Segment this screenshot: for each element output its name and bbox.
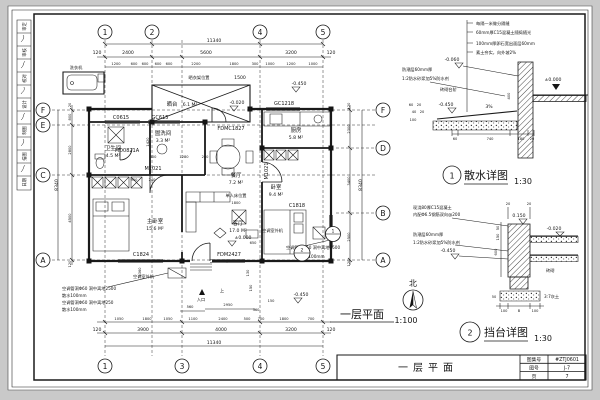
dim-label: 100 (410, 118, 418, 122)
svg-text:A: A (380, 256, 386, 265)
dim-label: 1000 (265, 62, 275, 66)
detail-scale: 1:30 (534, 334, 552, 343)
grid-bubble-left: F (36, 103, 50, 117)
note-ac-unit: 空调室外机 (262, 227, 284, 234)
note-apron: 散水100mm (62, 292, 87, 299)
room-area: 6.1 M² (183, 102, 198, 108)
room-name: 晒台 (167, 100, 178, 108)
grid-bubble-top: 5 (316, 25, 330, 39)
detail-note: 内配Φ6.5钢筋双向@200 (413, 211, 461, 218)
dim-label: 1280 (179, 155, 189, 159)
level-value: -0.450 (294, 292, 309, 298)
dim-label: 120 (327, 327, 336, 333)
dim-label: 2950 (223, 303, 233, 307)
dim-label: 120 (347, 259, 351, 267)
gravel-hatch (433, 121, 517, 130)
dim-label: 600 (155, 62, 163, 66)
curb-wall-hatch (508, 224, 530, 277)
dim-label: 8340 (54, 179, 60, 191)
room-area: 3.3 M² (156, 138, 171, 144)
dim-label: 2400 (122, 50, 134, 56)
dim-label: 950 (131, 178, 139, 182)
wall-hatch (518, 62, 533, 158)
dim-label: 120 (93, 327, 102, 333)
detail-number: 2 (467, 329, 472, 338)
dim-label: 1420 (146, 137, 150, 147)
dim-label: 700 (308, 317, 316, 321)
grid-bubble-right: B (376, 206, 390, 220)
dim-label: 1200 (286, 62, 296, 66)
room-name: 客厅 (233, 219, 244, 227)
svg-text:A: A (40, 256, 46, 265)
svg-text:3: 3 (180, 362, 185, 371)
level-value: -0.450 (292, 81, 307, 87)
door-code: FDMC1827 (217, 126, 244, 132)
level-value: -0.020 (230, 100, 245, 106)
detail-title-text: 挡台详图 (484, 325, 528, 339)
level-value: -0.020 (547, 226, 562, 232)
dim-label: 600 (142, 62, 150, 66)
dim-label: 150 (249, 284, 253, 292)
grid-bubble-bottom: 3 (175, 359, 189, 373)
dim-label: 11340 (207, 38, 222, 44)
svg-text:D: D (380, 144, 386, 153)
dim-label: 1800 (229, 62, 239, 66)
grid-bubble-bottom: 5 (316, 359, 330, 373)
dim-label: 120 (93, 50, 102, 56)
entrance-label: 入口 (197, 297, 205, 302)
window-code: C1818 (289, 203, 305, 209)
svg-text:E: E (41, 121, 46, 130)
door-code: M1021 (264, 162, 270, 179)
dim-label: 500 (244, 317, 252, 321)
dim-label: 3400 (347, 176, 351, 186)
dim-label: 100 (532, 309, 540, 313)
door-code: MD0821A (115, 148, 140, 154)
dim-label: 11340 (207, 340, 222, 346)
detail-note: 素土夯实，向外坡2% (476, 49, 516, 56)
signature-cell-label: 描图 (21, 152, 28, 161)
dim-label: 1050 (163, 317, 173, 321)
dim-label: 2400 (218, 317, 228, 321)
dim-label: 1800 (279, 317, 289, 321)
signature-cell-label: 审核 (21, 48, 28, 57)
room-area: 5.8 M² (289, 135, 304, 141)
window-code: C0615 (113, 115, 129, 121)
upper-floor-hatch (530, 237, 578, 243)
svg-text:1: 1 (103, 28, 108, 37)
dim-label: 40 (412, 110, 417, 114)
dim-label: 1100 (188, 317, 198, 321)
signature-cell-label: 审定 (21, 22, 28, 31)
dim-label: 600 (131, 62, 139, 66)
svg-text:5: 5 (321, 28, 326, 37)
svg-text:F: F (381, 106, 385, 115)
level-value: 0.150 (512, 213, 525, 219)
detail-note: 60mm厚C15混凝土随捣随光 (476, 29, 531, 36)
signature-cell-label: 设计 (21, 100, 28, 109)
detail-note: 防潮层60mm厚 (413, 231, 443, 238)
dim-label: 5600 (200, 50, 212, 56)
titleblock-row-label: 图号 (529, 366, 539, 372)
dim-label: 4500 (68, 213, 72, 223)
svg-text:4: 4 (258, 362, 263, 371)
dim-label: 120 (68, 260, 72, 268)
room-name: 盥洗间 (155, 129, 171, 137)
svg-text:B: B (380, 209, 385, 218)
grid-bubble-right: A (376, 253, 390, 267)
dim-label: 2500 (347, 232, 351, 242)
grid-bubble-bottom: 1 (98, 359, 112, 373)
note-apron: 散水100mm (62, 306, 87, 313)
room-name: 卧室 (271, 183, 282, 191)
titleblock-row-label: 页 (532, 374, 537, 380)
room-area: 15.6 M² (146, 226, 164, 232)
grid-bubble-right: F (376, 103, 390, 117)
svg-text:2: 2 (301, 248, 304, 254)
grid-bubble-left: C (36, 168, 50, 182)
room-area: 9.4 M² (269, 192, 284, 198)
level-value: -0.060 (445, 57, 460, 63)
dim-label: 120 (347, 102, 351, 110)
grid-bubble-bottom: 4 (253, 359, 267, 373)
detail-note: 1:2防水砂浆加5%防水剂 (402, 75, 449, 82)
dim-label: 600 (166, 62, 174, 66)
dim-label: 300 (252, 62, 260, 66)
dim-label: 180 (518, 137, 526, 141)
room-name: 餐厅 (231, 171, 242, 179)
dim-label: 360 (253, 308, 261, 312)
floor-slab-hatch (533, 96, 586, 102)
dim-label: 20 (527, 202, 532, 206)
titleblock-row-value: J-7 (563, 366, 570, 372)
svg-text:C: C (40, 171, 45, 180)
dim-label: 2200 (191, 62, 201, 66)
detail-scale: 1:30 (514, 177, 532, 186)
lime-soil-label: 3:7灰土 (544, 293, 559, 300)
titleblock-row-value: #ZTJ0601 (555, 357, 579, 363)
grid-bubble-top: 2 (145, 25, 159, 39)
detail-marker-2: 2 (294, 245, 310, 261)
detail-title-text: 散水详图 (464, 168, 508, 182)
door-code: M1021 (144, 166, 161, 172)
dim-label: 600 (494, 248, 498, 256)
room-name: 厨房 (291, 126, 302, 134)
dim-label: 3200 (285, 327, 297, 333)
titleblock-row-label: 图集号 (527, 356, 542, 363)
note-ac-hole: 空调管洞Φ60 洞中离地250 (62, 299, 114, 306)
dim-label: 800 (150, 155, 158, 159)
grid-bubble-right: D (376, 141, 390, 155)
dim-label: 20 (417, 103, 422, 107)
note-ac-hole: 空调管洞Φ60 洞中离地2500 (62, 285, 116, 292)
note-washer: 洗衣机 (70, 64, 83, 71)
cad-drawing: 审定 审核 校对 设计 制图 描图 日期 1 2 4 5 1 3 4 5 F E… (0, 0, 600, 400)
room-area: 7.2 M² (229, 180, 244, 186)
signature-cell-label: 校对 (21, 74, 28, 83)
dim-label: 60 (453, 137, 458, 141)
window-code: GC1218 (274, 101, 294, 107)
detail-note: 砖砌台阶 (440, 86, 458, 93)
room-area: 17.0 M² (229, 228, 247, 234)
dim-label: 150 (268, 299, 276, 303)
detail-number: 1 (449, 172, 454, 181)
dim-label: 50 (496, 225, 500, 230)
door-code: FDM2427 (217, 252, 241, 258)
detail-note: 每隔一米做分隔缝 (476, 20, 510, 27)
dim-label: 2800 (68, 145, 72, 155)
window-code: C1824 (133, 252, 149, 258)
dim-label: 150 (496, 233, 500, 241)
ground-hatch (530, 256, 578, 262)
svg-text:5: 5 (321, 362, 326, 371)
dim-label: 100 (501, 309, 509, 313)
detail-note: 1:2防水砂浆加5%防水剂 (413, 239, 460, 246)
grid-bubble-top: 1 (98, 25, 112, 39)
drawing-sheet: 审定 审核 校对 设计 制图 描图 日期 1 2 4 5 1 3 4 5 F E… (0, 0, 600, 400)
dim-label: 4000 (215, 327, 227, 333)
slope-label: 3% (485, 104, 493, 110)
dim-label: 20 (530, 137, 535, 141)
dim-label: 740 (487, 137, 495, 141)
dim-label: 1500 (234, 75, 246, 81)
dim-label: 1000 (308, 62, 318, 66)
footing-hatch (510, 277, 528, 289)
dim-label: 120 (327, 50, 336, 56)
signature-cell-label: 日期 (22, 178, 28, 187)
dim-label: 240 (202, 155, 210, 159)
detail-note: 100mm厚卵石宽出面层60mm (476, 40, 535, 47)
dim-label: 700 (258, 317, 266, 321)
level-value: -0.450 (439, 102, 454, 108)
svg-text:F: F (41, 106, 45, 115)
dim-label: 1800 (231, 201, 241, 205)
dim-label: 130 (246, 269, 250, 277)
titleblock-row-value: 7 (565, 374, 568, 380)
detail-note: 防潮层60mm厚 (402, 66, 432, 73)
svg-text:1: 1 (332, 229, 335, 235)
level-value: -0.450 (441, 248, 456, 254)
plan-title-text: 一层平面 (340, 308, 384, 321)
dim-label: 60 (409, 103, 414, 107)
brick-label: 砖砌 (546, 267, 554, 274)
detail-note: 现浇80厚C15混凝土 (413, 204, 452, 211)
dim-label: 8340 (358, 179, 364, 191)
dim-label: 1200 (111, 62, 121, 66)
window-code: GC615 (152, 115, 169, 121)
signature-cell-label: 制图 (21, 126, 28, 135)
note-ac-unit: 空调室外机 (133, 273, 155, 280)
dim-label: 560 (187, 305, 195, 309)
note-bed: 单人床位置 (226, 192, 247, 199)
detail-marker-1: 1 (326, 227, 341, 242)
dim-label: 3900 (137, 327, 149, 333)
svg-text:1: 1 (103, 362, 108, 371)
dim-label: 400 (507, 92, 511, 100)
grid-bubble-top: 4 (253, 25, 267, 39)
dim-label: 50 (492, 295, 497, 299)
room-name: 主卧室 (147, 217, 164, 225)
dim-label: 3200 (285, 50, 297, 56)
grid-bubble-left: E (36, 118, 50, 132)
dim-label: 2300 (347, 124, 351, 134)
lime-soil-hatch (500, 291, 540, 301)
note-drying-rack: 晒衣架位置 (189, 74, 210, 81)
dim-label: 650 (250, 241, 258, 245)
up-label: 上 (220, 287, 224, 293)
grid-bubble-left: A (36, 253, 50, 267)
dim-label: 1050 (114, 317, 124, 321)
plan-scale: 1:100 (394, 316, 417, 325)
titleblock-drawing-title: 一层平面 (398, 362, 458, 374)
dim-label: 800 (68, 113, 72, 121)
dim-label: 1800 (142, 317, 152, 321)
north-label: 北 (409, 279, 417, 288)
dim-label: 20 (506, 202, 511, 206)
level-value: ±0.000 (544, 77, 561, 83)
svg-text:4: 4 (258, 28, 263, 37)
dim-label: 20 (68, 102, 72, 107)
dim-label: 240 (149, 178, 157, 182)
dim-label: 20 (420, 110, 425, 114)
svg-text:2: 2 (150, 28, 155, 37)
